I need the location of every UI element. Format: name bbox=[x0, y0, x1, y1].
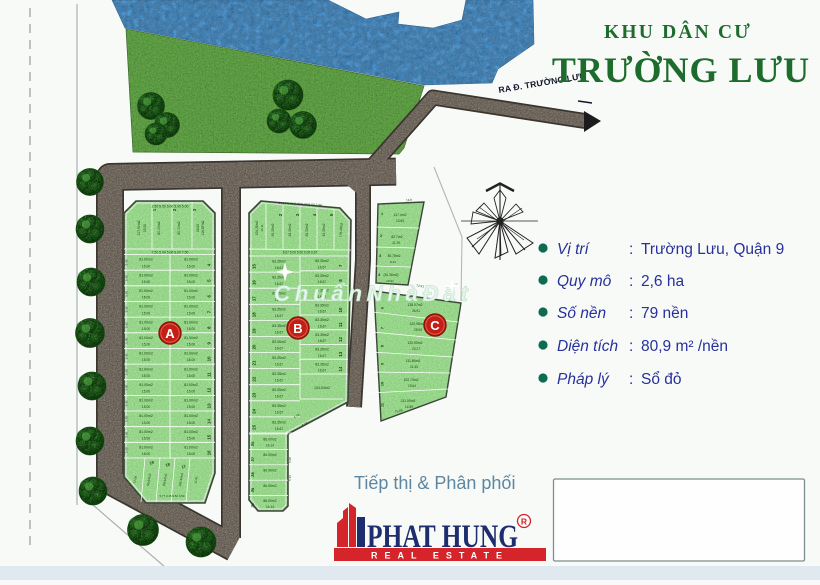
svg-text:15.00: 15.00 bbox=[187, 358, 195, 362]
svg-text:Vị trí: Vị trí bbox=[557, 241, 591, 258]
svg-text:16.67: 16.67 bbox=[318, 310, 326, 314]
svg-text::: : bbox=[629, 305, 633, 322]
svg-text:81.00m2: 81.00m2 bbox=[139, 273, 153, 277]
svg-text:83.35m2: 83.35m2 bbox=[315, 274, 329, 278]
svg-text:83.35m2: 83.35m2 bbox=[271, 223, 275, 236]
svg-text:17: 17 bbox=[252, 296, 257, 301]
svg-text:14.89: 14.89 bbox=[405, 405, 413, 409]
svg-text:83.35m2: 83.35m2 bbox=[272, 324, 286, 328]
svg-text:83.35m2: 83.35m2 bbox=[272, 259, 286, 263]
svg-text:16.67: 16.67 bbox=[275, 266, 283, 270]
svg-text:19.64: 19.64 bbox=[408, 384, 416, 388]
svg-text:23: 23 bbox=[252, 392, 257, 397]
svg-text:81.00m2: 81.00m2 bbox=[184, 430, 198, 434]
svg-text:5.40: 5.40 bbox=[125, 275, 129, 281]
svg-text:1: 1 bbox=[381, 212, 383, 216]
svg-text:21.45: 21.45 bbox=[410, 365, 418, 369]
svg-text:81.00m2: 81.00m2 bbox=[184, 289, 198, 293]
svg-text:5.40: 5.40 bbox=[125, 322, 129, 328]
svg-text:25.59: 25.59 bbox=[414, 328, 422, 332]
svg-text:80.00m2: 80.00m2 bbox=[263, 453, 276, 457]
svg-text:15.00: 15.00 bbox=[142, 280, 150, 284]
svg-text:111.85m2: 111.85m2 bbox=[406, 359, 421, 363]
svg-text:14.14: 14.14 bbox=[266, 505, 274, 509]
svg-text:2: 2 bbox=[380, 234, 382, 238]
svg-text:16.67: 16.67 bbox=[318, 265, 326, 269]
svg-text:80.00m2: 80.00m2 bbox=[157, 221, 161, 234]
svg-text:15.00: 15.00 bbox=[142, 358, 150, 362]
svg-text:16.00: 16.00 bbox=[196, 224, 200, 232]
svg-text:80,9 m² /nền: 80,9 m² /nền bbox=[641, 338, 728, 355]
svg-text:15.00: 15.00 bbox=[187, 280, 195, 284]
svg-text:Diện tích: Diện tích bbox=[557, 338, 618, 355]
svg-text:13: 13 bbox=[207, 403, 212, 408]
svg-text:15.00: 15.00 bbox=[187, 264, 195, 268]
svg-text:15.00: 15.00 bbox=[142, 327, 150, 331]
svg-text:6.67 5.00 5.00 5.00 6.67: 6.67 5.00 5.00 5.00 6.67 bbox=[283, 251, 318, 255]
svg-text:KHU DÂN CƯ: KHU DÂN CƯ bbox=[604, 21, 752, 43]
svg-text:83.35m2: 83.35m2 bbox=[322, 223, 326, 236]
svg-text:81.00m2: 81.00m2 bbox=[184, 352, 198, 356]
svg-text:8.41: 8.41 bbox=[390, 260, 396, 264]
svg-text:6: 6 bbox=[381, 307, 385, 309]
svg-text:83.35m2: 83.35m2 bbox=[315, 318, 329, 322]
svg-text:7: 7 bbox=[381, 327, 385, 329]
svg-text:5.40: 5.40 bbox=[125, 291, 129, 297]
svg-text:A: A bbox=[165, 326, 175, 341]
svg-text:15.00: 15.00 bbox=[187, 296, 195, 300]
svg-text:83.35m2: 83.35m2 bbox=[272, 356, 286, 360]
svg-text:13.9: 13.9 bbox=[406, 198, 412, 202]
svg-text:16: 16 bbox=[252, 280, 257, 285]
svg-text:80.00m2: 80.00m2 bbox=[263, 468, 276, 472]
svg-text:11: 11 bbox=[338, 322, 343, 327]
svg-text:B: B bbox=[293, 321, 302, 336]
svg-text:15.00: 15.00 bbox=[187, 343, 195, 347]
svg-text::: : bbox=[629, 338, 633, 355]
svg-text:81.00m2: 81.00m2 bbox=[139, 446, 153, 450]
svg-text:10: 10 bbox=[338, 307, 343, 312]
svg-text:8: 8 bbox=[381, 345, 385, 347]
svg-text:81.00m2: 81.00m2 bbox=[184, 367, 198, 371]
svg-text:15.00: 15.00 bbox=[142, 311, 150, 315]
svg-text:83.35m2: 83.35m2 bbox=[272, 308, 286, 312]
svg-text:15.00: 15.00 bbox=[187, 436, 195, 440]
svg-text:81.00m2: 81.00m2 bbox=[139, 383, 153, 387]
svg-text:14: 14 bbox=[207, 419, 212, 424]
svg-text:81.00m2: 81.00m2 bbox=[139, 320, 153, 324]
svg-text:(81.36m2): (81.36m2) bbox=[383, 273, 398, 277]
svg-text::: : bbox=[629, 371, 633, 388]
svg-text:11: 11 bbox=[207, 372, 212, 377]
svg-text:7.50 5.00 5.00 5.00 7.50: 7.50 5.00 5.00 5.00 7.50 bbox=[152, 251, 189, 255]
svg-text:ChuẩnNhàĐất: ChuẩnNhàĐất bbox=[274, 281, 472, 306]
svg-text:Sổ đỏ: Sổ đỏ bbox=[641, 371, 682, 388]
svg-text:12: 12 bbox=[338, 337, 343, 342]
svg-text:15.00: 15.00 bbox=[187, 390, 195, 394]
svg-text:Trường Lưu, Quận 9: Trường Lưu, Quận 9 bbox=[641, 241, 784, 258]
svg-text:83.35m2: 83.35m2 bbox=[272, 388, 286, 392]
svg-text:81.00m2: 81.00m2 bbox=[139, 289, 153, 293]
svg-text:15.00: 15.00 bbox=[187, 405, 195, 409]
svg-text:102.73m2: 102.73m2 bbox=[403, 378, 418, 382]
svg-text:116.87m2: 116.87m2 bbox=[201, 220, 205, 235]
svg-text:5.40: 5.40 bbox=[125, 416, 129, 422]
svg-text:5.98: 5.98 bbox=[288, 457, 292, 463]
svg-text:15: 15 bbox=[207, 434, 212, 439]
svg-text:5.40: 5.40 bbox=[125, 338, 129, 344]
svg-text:16.67: 16.67 bbox=[318, 354, 326, 358]
svg-text:23.27: 23.27 bbox=[412, 347, 420, 351]
svg-text:26.91: 26.91 bbox=[412, 309, 420, 313]
svg-text:86.00m2: 86.00m2 bbox=[263, 438, 276, 442]
svg-text:82.7m2: 82.7m2 bbox=[391, 235, 402, 239]
svg-text:15.00: 15.00 bbox=[142, 343, 150, 347]
svg-text:81.00m2: 81.00m2 bbox=[139, 305, 153, 309]
svg-text:81.00m2: 81.00m2 bbox=[184, 399, 198, 403]
svg-text:211.05m2: 211.05m2 bbox=[401, 399, 416, 403]
svg-text:Số nền: Số nền bbox=[557, 305, 606, 322]
svg-text:15.00: 15.00 bbox=[142, 421, 150, 425]
svg-text:16.67: 16.67 bbox=[318, 324, 326, 328]
svg-text:Tiếp thị & Phân phối: Tiếp thị & Phân phối bbox=[354, 473, 515, 493]
svg-text:15.00: 15.00 bbox=[142, 390, 150, 394]
svg-text:15.00: 15.00 bbox=[142, 436, 150, 440]
svg-text:83.35m2: 83.35m2 bbox=[272, 340, 286, 344]
svg-text:12: 12 bbox=[207, 387, 212, 392]
svg-text:81.00m2: 81.00m2 bbox=[184, 320, 198, 324]
svg-text:Pháp lý: Pháp lý bbox=[557, 371, 610, 388]
svg-text:16.67: 16.67 bbox=[318, 339, 326, 343]
svg-text:5.16: 5.16 bbox=[288, 475, 292, 481]
svg-text:83.35m2: 83.35m2 bbox=[272, 372, 286, 376]
svg-text:120.98m2: 120.98m2 bbox=[409, 322, 424, 326]
svg-text:81.00m2: 81.00m2 bbox=[184, 414, 198, 418]
svg-text:Quy mô: Quy mô bbox=[557, 273, 612, 290]
svg-text:15.00: 15.00 bbox=[187, 421, 195, 425]
svg-text:15.00: 15.00 bbox=[187, 311, 195, 315]
svg-text:REAL ESTATE: REAL ESTATE bbox=[371, 551, 509, 561]
svg-text:83.35m2: 83.35m2 bbox=[315, 362, 329, 366]
svg-text:5.40: 5.40 bbox=[125, 306, 129, 312]
svg-text:5.40: 5.40 bbox=[125, 369, 129, 375]
svg-text:16.67: 16.67 bbox=[275, 395, 283, 399]
svg-text:13.65: 13.65 bbox=[396, 219, 404, 223]
svg-text:83.35m2: 83.35m2 bbox=[272, 404, 286, 408]
svg-text:81.00m2: 81.00m2 bbox=[184, 305, 198, 309]
svg-text:16.67: 16.67 bbox=[275, 362, 283, 366]
svg-text:81.00m2: 81.00m2 bbox=[139, 414, 153, 418]
svg-text:117.4m2: 117.4m2 bbox=[394, 213, 407, 217]
svg-text:86.00m2: 86.00m2 bbox=[263, 499, 276, 503]
svg-text::: : bbox=[629, 241, 633, 258]
svg-text:16: 16 bbox=[207, 450, 212, 455]
svg-text:2.50 5.00 5.00 5.00 5.00: 2.50 5.00 5.00 5.00 5.00 bbox=[152, 205, 189, 209]
svg-text:81.00m2: 81.00m2 bbox=[184, 258, 198, 262]
svg-text:81.00m2: 81.00m2 bbox=[139, 367, 153, 371]
svg-text:81.00m2: 81.00m2 bbox=[184, 383, 198, 387]
svg-text:104.28m2: 104.28m2 bbox=[255, 221, 259, 236]
svg-text:10: 10 bbox=[207, 356, 212, 361]
svg-text:16.67: 16.67 bbox=[275, 411, 283, 415]
svg-text:13: 13 bbox=[338, 351, 343, 356]
svg-text:79 nền: 79 nền bbox=[641, 305, 688, 322]
svg-text:15.00: 15.00 bbox=[142, 264, 150, 268]
svg-text:24: 24 bbox=[252, 408, 257, 413]
svg-text:15.00: 15.00 bbox=[187, 327, 195, 331]
svg-text:83.35m2: 83.35m2 bbox=[315, 333, 329, 337]
svg-text:5.40: 5.40 bbox=[125, 353, 129, 359]
svg-text:5.40: 5.40 bbox=[125, 259, 129, 265]
svg-text:80.00m2: 80.00m2 bbox=[177, 221, 181, 234]
svg-text:2,6 ha: 2,6 ha bbox=[641, 273, 684, 290]
svg-text:80.00m2: 80.00m2 bbox=[263, 484, 276, 488]
svg-text:83.35m2: 83.35m2 bbox=[288, 223, 292, 236]
svg-text:15.00: 15.00 bbox=[187, 374, 195, 378]
svg-text:81.00m2: 81.00m2 bbox=[184, 336, 198, 340]
svg-text:R: R bbox=[521, 517, 527, 527]
svg-text:22: 22 bbox=[252, 376, 257, 381]
svg-text:9: 9 bbox=[381, 363, 385, 365]
svg-text:16.67: 16.67 bbox=[275, 330, 283, 334]
svg-text:107.50m2: 107.50m2 bbox=[137, 220, 141, 235]
svg-text:134.03m2: 134.03m2 bbox=[314, 386, 330, 390]
svg-text:5.40: 5.40 bbox=[125, 447, 129, 453]
svg-text:16.67: 16.67 bbox=[318, 369, 326, 373]
svg-text:15: 15 bbox=[252, 264, 257, 269]
svg-text:14: 14 bbox=[338, 366, 343, 371]
svg-text:83.35m2: 83.35m2 bbox=[305, 223, 309, 236]
svg-text:80.78m2: 80.78m2 bbox=[388, 254, 401, 258]
svg-text:20: 20 bbox=[252, 344, 257, 349]
svg-text:5.40: 5.40 bbox=[125, 385, 129, 391]
svg-text:81.00m2: 81.00m2 bbox=[139, 352, 153, 356]
svg-text:21: 21 bbox=[252, 360, 257, 365]
svg-text:81.00m2: 81.00m2 bbox=[184, 446, 198, 450]
svg-text:120.90m2: 120.90m2 bbox=[407, 341, 422, 345]
svg-text::: : bbox=[629, 273, 633, 290]
svg-text:15.00: 15.00 bbox=[143, 224, 147, 232]
svg-text:10: 10 bbox=[381, 382, 385, 386]
svg-text:C: C bbox=[430, 318, 440, 333]
svg-text:14.14: 14.14 bbox=[266, 444, 274, 448]
svg-text:83.35m2: 83.35m2 bbox=[315, 348, 329, 352]
svg-text:16.67: 16.67 bbox=[275, 379, 283, 383]
svg-text:81.00m2: 81.00m2 bbox=[139, 430, 153, 434]
svg-text:5.40: 5.40 bbox=[125, 400, 129, 406]
svg-text:18: 18 bbox=[252, 312, 257, 317]
svg-text:16.67: 16.67 bbox=[275, 427, 283, 431]
svg-text:81.00m2: 81.00m2 bbox=[184, 273, 198, 277]
svg-text:15.00: 15.00 bbox=[142, 452, 150, 456]
svg-text:16.67: 16.67 bbox=[275, 314, 283, 318]
svg-text:83.35m2: 83.35m2 bbox=[315, 259, 329, 263]
svg-text:15.00: 15.00 bbox=[142, 374, 150, 378]
svg-text:11: 11 bbox=[381, 403, 385, 407]
svg-text:5.77 3.15 9.52 4.50: 5.77 3.15 9.52 4.50 bbox=[160, 494, 185, 498]
svg-text:81.00m2: 81.00m2 bbox=[139, 258, 153, 262]
svg-text:25: 25 bbox=[252, 424, 257, 429]
svg-text:83.35m2: 83.35m2 bbox=[272, 420, 286, 424]
svg-text:3: 3 bbox=[379, 254, 381, 258]
svg-text:81.00m2: 81.00m2 bbox=[139, 336, 153, 340]
svg-text:11.29: 11.29 bbox=[392, 241, 400, 245]
svg-text:5.40: 5.40 bbox=[125, 431, 129, 437]
svg-text:81.00m2: 81.00m2 bbox=[139, 399, 153, 403]
svg-text:19: 19 bbox=[252, 328, 257, 333]
svg-text:TRƯỜNG LƯU: TRƯỜNG LƯU bbox=[552, 50, 810, 90]
svg-text:16.11: 16.11 bbox=[260, 224, 264, 232]
svg-text:15.00: 15.00 bbox=[142, 405, 150, 409]
svg-text:15.00: 15.00 bbox=[142, 296, 150, 300]
svg-text:16.67: 16.67 bbox=[275, 346, 283, 350]
svg-text:15.00: 15.00 bbox=[187, 452, 195, 456]
